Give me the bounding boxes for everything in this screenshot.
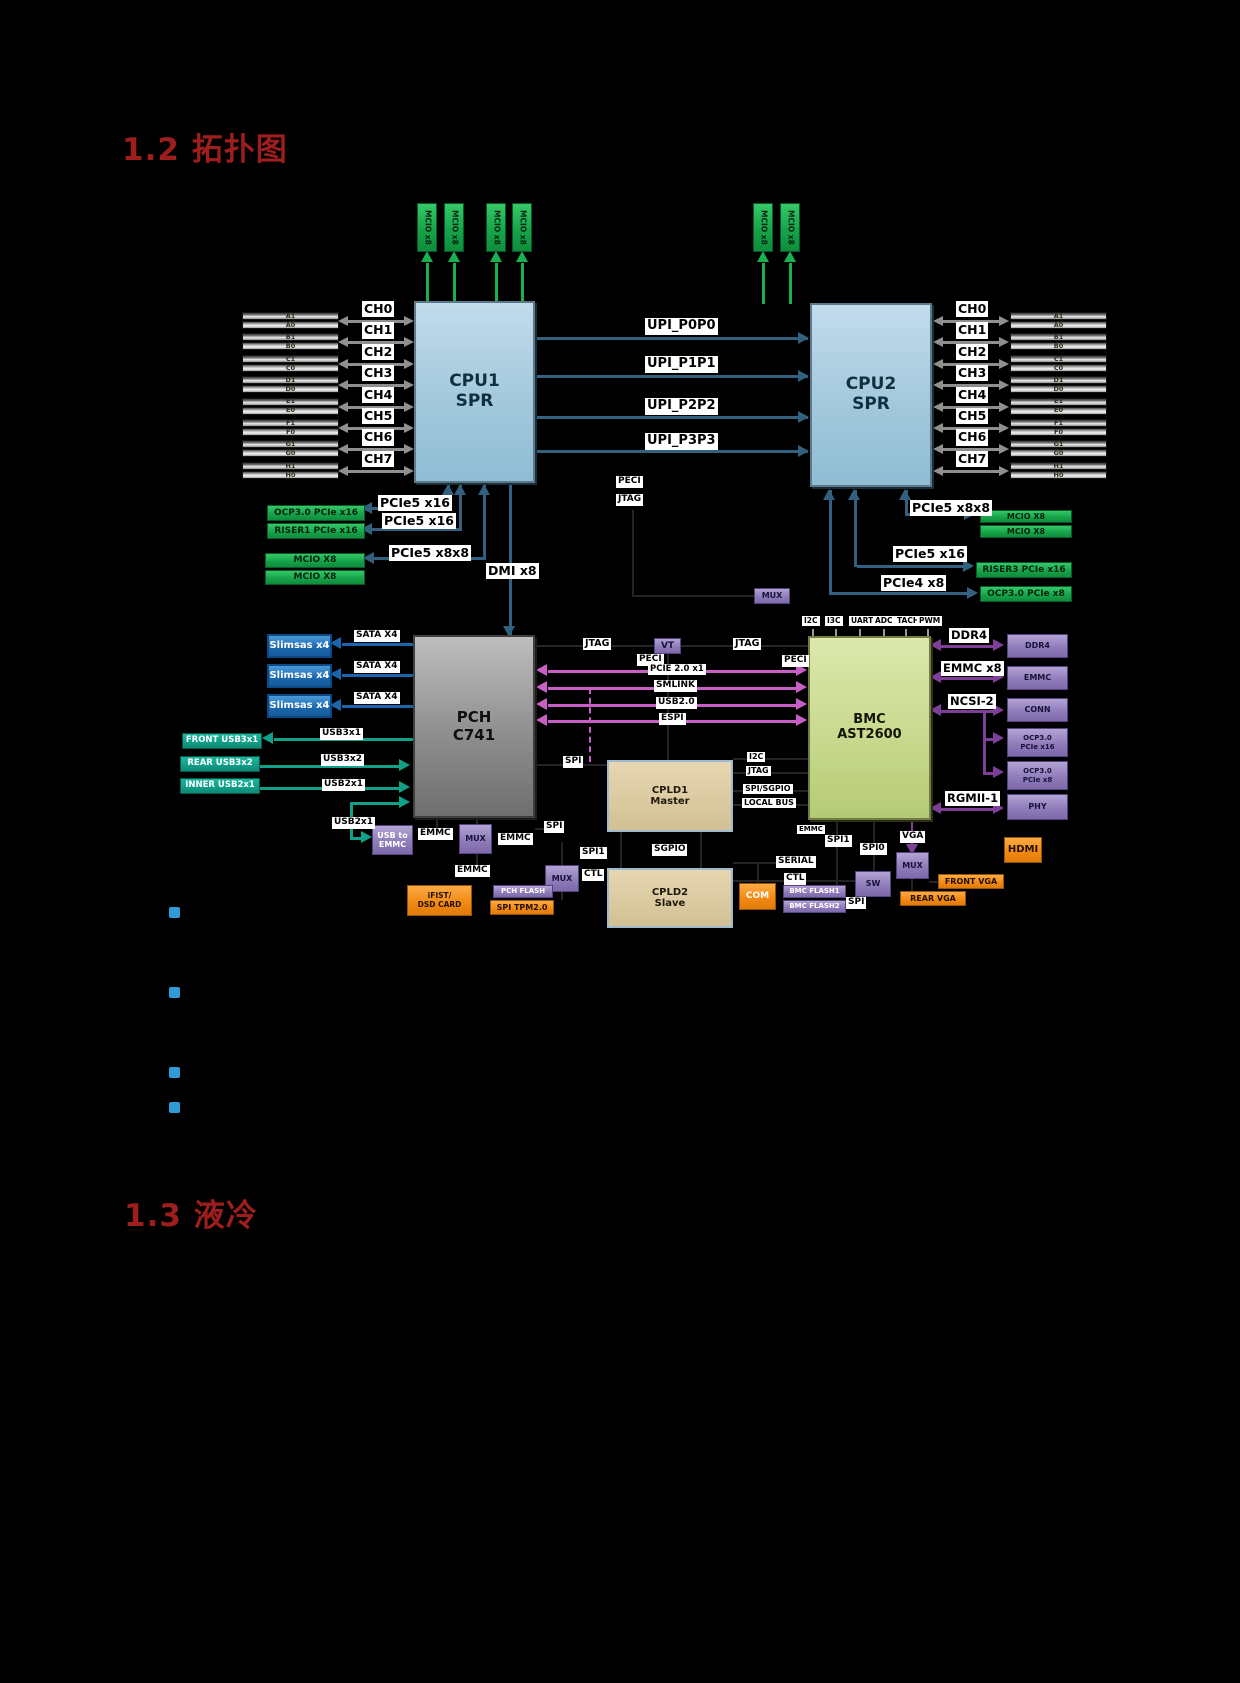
arrowhead-l [338,337,348,347]
arrowhead-r [798,332,809,344]
arrowhead-r [798,445,809,457]
bmc-flash1-box: BMC FLASH1 [783,885,846,898]
upi-link-0: UPI_P0P0 [645,318,718,335]
upi-link-1: UPI_P1P1 [645,356,718,373]
usb3x2-label: USB3x2 [321,754,364,766]
dimm-slot-left: D0 [242,385,339,393]
channel-label-right: CH2 [956,344,988,360]
mcio-conn-cpu1-2: MCIO x8 [444,203,464,252]
arrowhead-r [796,681,807,693]
connector-line [941,710,997,713]
dimm-slot-right: D1 [1010,376,1107,384]
dimm-slot-right: D0 [1010,385,1107,393]
channel-label-left: CH5 [362,408,394,424]
channel-label-left: CH2 [362,344,394,360]
arrowhead-r [967,587,978,599]
connector-line [789,263,792,304]
arrowhead-l [930,671,941,683]
arrowhead-l [338,380,348,390]
connector-line [836,820,838,885]
sata-x4-2: SATA X4 [354,661,400,673]
peci-bmc: PECI [782,655,809,667]
bmc-if-label: I3C [825,616,843,626]
mcio-x8-right-2: MCIO X8 [980,525,1072,538]
channel-label-left: CH0 [362,301,394,317]
mcio-x8-left-1: MCIO X8 [265,553,365,568]
arrowhead-r [993,766,1004,778]
bmc-if-tick [859,629,861,636]
slimsas-2: Slimsas x4 [267,664,332,688]
connector-line [911,879,913,891]
arrowhead-l [933,337,943,347]
arrowhead-u [448,251,460,262]
channel-label-left: CH1 [362,322,394,338]
rear-usb3-conn: REAR USB3x2 [180,756,260,772]
mcio-conn-cpu1-1: MCIO x8 [417,203,437,252]
channel-label-right: CH7 [956,451,988,467]
mcio-conn-cpu2-2: MCIO x8 [780,203,800,252]
pcie20x1-label: PCIE 2.0 x1 [648,664,706,675]
arrowhead-l [933,316,943,326]
bullet-marker [169,1067,180,1078]
arrowhead-r [999,316,1009,326]
emmc-x8-label: EMMC x8 [941,661,1004,676]
connector-line [342,643,413,646]
dimm-slot-right: H1 [1010,462,1107,470]
arrowhead-u [516,251,528,262]
bmc-if-tick [927,629,929,636]
dmi-x8: DMI x8 [486,563,539,579]
arrowhead-u [848,489,860,500]
inner-usb2-conn: INNER USB2x1 [180,778,260,794]
ncsi2-label: NCSI-2 [948,694,996,709]
arrowhead-r [999,402,1009,412]
connector-line [509,484,512,635]
dimm-slot-right: H0 [1010,471,1107,479]
dimm-slot-right: C0 [1010,364,1107,372]
connector-line [829,490,832,595]
espi-label: ESPI [659,713,686,725]
arrowhead-l [933,359,943,369]
connector-line [700,832,702,868]
pcie5-x16-b: PCIe5 x16 [382,513,456,529]
spi-pch-cpld: SPI [563,756,583,768]
mcio-x8-right-1: MCIO X8 [980,510,1072,523]
section-heading-1-2: 1.2 拓扑图 [122,124,288,169]
slimsas-1: Slimsas x4 [267,634,332,658]
channel-label-left: CH6 [362,429,394,445]
front-vga-box: FRONT VGA [938,874,1004,889]
jtag-cpld: JTAG [746,766,771,776]
serial-label: SERIAL [776,856,816,868]
connector-line [537,337,808,340]
cpu1-block: CPU1 SPR [414,301,535,483]
arrowhead-r [399,796,410,808]
bullet-marker [169,907,180,918]
sw-box: SW [855,871,891,897]
channel-label-left: CH7 [362,451,394,467]
ddr4-label: DDR4 [949,628,989,643]
i2c-cpld: I2C [747,752,765,762]
connector-line [941,808,997,811]
dimm-slot-right: E1 [1010,398,1107,406]
connector-line [537,375,808,378]
pcie5-x8x8-left: PCIe5 x8x8 [389,545,471,561]
connector-line [342,705,413,708]
pcie5-x8x8-right: PCIe5 x8x8 [910,500,992,516]
phy-box: PHY [1007,794,1068,820]
dimm-slot-left: C1 [242,355,339,363]
usb2x1-label: USB2x1 [322,779,365,791]
arrowhead-u [823,489,835,500]
bmc-if-tick [883,629,885,636]
connector-line [857,565,967,568]
arrowhead-l [536,698,547,710]
connector-line [426,263,429,302]
dimm-slot-left: H1 [242,462,339,470]
vt-box: VT [654,638,681,654]
bullet-marker [169,1102,180,1113]
usb20-label: USB2.0 [656,697,697,709]
arrowhead-l [933,444,943,454]
usb2x1-label-2: USB2x1 [332,817,375,829]
arrowhead-l [338,359,348,369]
dimm-slot-right: B0 [1010,342,1107,350]
arrowhead-r [399,759,410,771]
bmc-block: BMC AST2600 [808,636,931,820]
connector-line [436,818,438,828]
dimm-slot-left: G0 [242,449,339,457]
spi-sgpio-label: SPI/SGPIO [743,784,793,794]
smlink-label: SMLINK [654,680,697,692]
com-box: COM [739,883,776,910]
dimm-slot-right: A1 [1010,312,1107,320]
bmc-if-label: I2C [802,616,820,626]
arrowhead-u [442,484,454,495]
dimm-slot-left: A0 [242,321,339,329]
arrowhead-r [399,781,410,793]
riser3-pcie-x16-conn: RISER3 PCIe x16 [976,562,1072,578]
connector-line [521,263,524,302]
arrowhead-u [490,251,502,262]
connector-line [476,854,478,865]
arrowhead-r [404,359,414,369]
dimm-slot-left: H0 [242,471,339,479]
cpld2-block: CPLD2 Slave [607,868,733,928]
cpld1-block: CPLD1 Master [607,760,733,832]
dimm-slot-right: F0 [1010,428,1107,436]
connector-line [941,677,997,680]
emmc-label-bmc: EMMC [797,825,825,834]
channel-label-right: CH1 [956,322,988,338]
spi-label-a: SPI [544,821,564,833]
connector-line [483,484,486,560]
arrowhead-r [999,466,1009,476]
peci-center: PECI [616,476,643,488]
dimm-slot-left: D1 [242,376,339,384]
arrowhead-r [999,380,1009,390]
connector-line [941,645,997,648]
dimm-slot-left: B1 [242,333,339,341]
pch-block: PCH C741 [413,635,535,818]
bmc-flash2-box: BMC FLASH2 [783,900,846,913]
bullet-marker [169,987,180,998]
arrowhead-u [454,484,466,495]
usb3x1-label: USB3x1 [320,728,363,740]
arrowhead-l [338,316,348,326]
channel-arrow [943,470,1000,473]
arrowhead-r [404,423,414,433]
channel-label-right: CH6 [956,429,988,445]
pcie4-x8-right: PCIe4 x8 [881,575,946,591]
dimm-slot-left: A1 [242,312,339,320]
connector-line [352,802,400,805]
arrowhead-l [338,466,348,476]
arrowhead-l [536,714,547,726]
mcio-conn-cpu1-3: MCIO x8 [486,203,506,252]
connector-line [620,832,622,868]
pcie5-x16-right: PCIe5 x16 [893,546,967,562]
dimm-slot-right: E0 [1010,407,1107,415]
arrowhead-l [338,402,348,412]
dimm-slot-left: E0 [242,407,339,415]
section-heading-1-3: 1.3 液冷 [124,1190,258,1235]
arrowhead-r [361,831,372,843]
connector-line [854,490,857,567]
rear-vga-box: REAR VGA [900,891,966,906]
connector-line [832,592,971,595]
channel-label-left: CH4 [362,387,394,403]
connector-line [561,842,563,865]
connector-line [632,510,634,597]
dimm-slot-left: G1 [242,440,339,448]
bmc-if-tick [905,629,907,636]
arrowhead-r [404,316,414,326]
emmc-box: EMMC [1007,666,1068,690]
channel-label-right: CH0 [956,301,988,317]
bmc-if-label: ADC [873,616,895,626]
upi-link-3: UPI_P3P3 [645,433,718,450]
jtag-center: JTAG [616,494,643,506]
dimm-slot-left: F0 [242,428,339,436]
arrowhead-l [933,380,943,390]
arrowhead-u [784,251,796,262]
ocp3-pcie-x16-conn: OCP3.0 PCIe x16 [267,505,365,521]
bmc-if-label: UART [849,616,875,626]
arrowhead-l [930,802,941,814]
arrowhead-r [404,337,414,347]
arrowhead-l [930,704,941,716]
connector-line [495,263,498,302]
emmc-label-3: EMMC [455,865,490,877]
arrowhead-r [993,732,1004,744]
dimm-slot-right: A0 [1010,321,1107,329]
spi-tpm-box: SPI TPM2.0 [490,900,554,915]
arrowhead-u [899,489,911,500]
arrowhead-r [404,444,414,454]
dimm-slot-left: B0 [242,342,339,350]
bmc-if-tick [812,629,814,636]
dimm-slot-right: G1 [1010,440,1107,448]
connector-line [632,595,754,597]
mcio-x8-left-2: MCIO X8 [265,570,365,585]
riser1-pcie-x16-conn: RISER1 PCIe x16 [267,523,365,539]
arrowhead-l [536,681,547,693]
hdmi-box: HDMI [1004,837,1042,863]
arrowhead-l [933,423,943,433]
arrowhead-r [798,370,809,382]
mcio-conn-cpu2-1: MCIO x8 [753,203,773,252]
cpu2-block: CPU2 SPR [810,303,932,487]
arrowhead-r [993,639,1004,651]
front-usb3-conn: FRONT USB3x1 [182,733,262,749]
channel-label-right: CH4 [956,387,988,403]
arrowhead-u [757,251,769,262]
ocp3-pcie-x8-conn: OCP3.0 PCIe x8 [980,586,1072,602]
arrowhead-l [933,402,943,412]
arrowhead-r [999,444,1009,454]
arrowhead-l [536,664,547,676]
arrowhead-r [999,359,1009,369]
dimm-slot-right: F1 [1010,419,1107,427]
channel-label-left: CH3 [362,365,394,381]
arrowhead-u [478,484,490,495]
mux-box-3: MUX [896,852,929,879]
mux-box-1: MUX [459,824,492,854]
emmc-label-2: EMMC [498,833,533,845]
sata-x4-3: SATA X4 [354,692,400,704]
arrowhead-l [930,639,941,651]
ocp3-x16-box: OCP3.0 PCIe x16 [1007,728,1068,757]
bmc-if-tick [835,629,837,636]
arrowhead-r [796,698,807,710]
dimm-slot-left: E1 [242,398,339,406]
connector-line [983,711,986,775]
ocp3-x8-box: OCP3.0 PCIe x8 [1007,761,1068,790]
dimm-slot-right: B1 [1010,333,1107,341]
ifist-dsd-box: iFIST/ DSD CARD [407,885,472,916]
sata-x4-1: SATA X4 [354,630,400,642]
pcie5-x16-a: PCIe5 x16 [378,495,452,511]
dimm-slot-left: C0 [242,364,339,372]
dimm-slot-right: C1 [1010,355,1107,363]
vga-label: VGA [900,831,925,843]
usb-to-emmc-box: USB to EMMC [372,825,413,855]
spi-label-sw: SPI [846,897,866,909]
arrowhead-r [999,423,1009,433]
slimsas-3: Slimsas x4 [267,694,332,718]
channel-label-right: CH3 [956,365,988,381]
arrowhead-r [999,337,1009,347]
channel-label-right: CH5 [956,408,988,424]
mux-top-box: MUX [754,588,790,604]
pch-flash-box: PCH FLASH [493,885,553,898]
ctl-label-right: CTL [784,873,806,885]
connector-line [561,892,563,900]
sgpio-label: SGPIO [652,844,687,856]
topology-diagram-page: CH0CH0CH1CH1CH2CH2CH3CH3CH4CH4CH5CH5CH6C… [0,0,1240,1683]
connector-line [762,263,765,304]
spi1-label-right: SPI1 [825,835,852,847]
arrowhead-r [798,411,809,423]
local-bus-label: LOCAL BUS [742,798,796,808]
arrowhead-r [796,714,807,726]
arrowhead-r [404,466,414,476]
jtag-mid-right: JTAG [733,638,761,650]
connector-line [453,263,456,302]
arrowhead-l [338,444,348,454]
bmc-if-label: PWM [917,616,942,626]
jtag-mid-left: JTAG [583,638,611,650]
arrowhead-l [262,732,273,744]
arrowhead-r [404,380,414,390]
ctl-label-left: CTL [582,869,604,881]
arrowhead-l [338,423,348,433]
rgmii1-label: RGMII-1 [945,791,1000,806]
ddr4-box: DDR4 [1007,634,1068,658]
upi-link-2: UPI_P2P2 [645,398,718,415]
dimm-slot-right: G0 [1010,449,1107,457]
spi1-label-left: SPI1 [580,847,607,859]
connector-line [342,674,413,677]
connector-line [589,688,591,762]
connector-line [537,450,808,453]
spi0-label: SPI0 [860,843,887,855]
emmc-label-1: EMMC [418,828,453,840]
arrowhead-l [933,466,943,476]
arrowhead-r [404,402,414,412]
connector-line [537,416,808,419]
dimm-slot-left: F1 [242,419,339,427]
arrowhead-u [421,251,433,262]
connector-line [733,758,808,760]
conn-box: CONN [1007,698,1068,722]
channel-arrow [348,470,405,473]
mcio-conn-cpu1-4: MCIO x8 [512,203,532,252]
